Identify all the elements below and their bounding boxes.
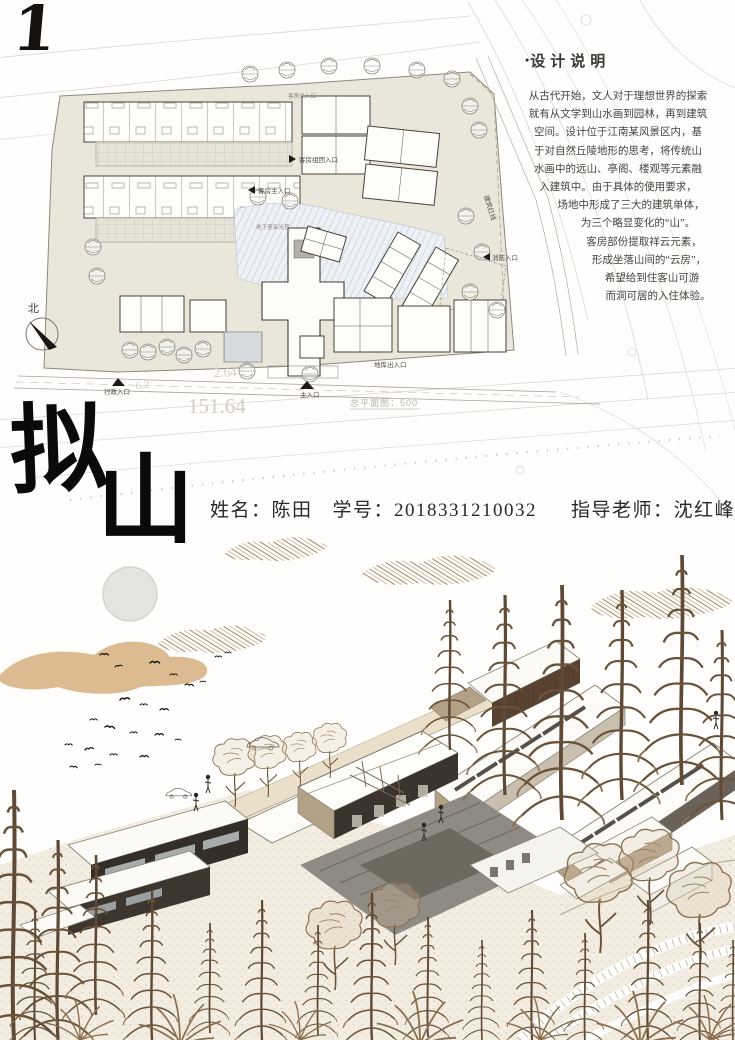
note-line: 于对自然丘陵地形的思考，将传统山 <box>519 143 717 161</box>
north-label: 北 <box>28 302 39 315</box>
design-notes-title-text: 设计说明 <box>530 54 610 70</box>
sheet-number: 1 <box>10 0 60 65</box>
id-label: 学号： <box>333 500 395 521</box>
note-line: 客房部份提取祥云元素， <box>519 234 717 252</box>
dimension-small: 6.2 <box>135 379 150 392</box>
label-admin-entrance: 行政入口 <box>104 387 130 396</box>
note-line: 希望给到住客山可游 <box>519 270 717 288</box>
title-calligraphy-char2: 山 <box>97 452 194 549</box>
note-line: 为三个略显变化的“山”。 <box>519 215 717 233</box>
design-notes-title: •设计说明 <box>525 50 717 71</box>
student-id: 2018331210032 <box>394 500 537 521</box>
advisor-name: 沈红峰 <box>674 500 735 521</box>
advisor-label: 指导老师： <box>571 500 674 521</box>
note-line: 形成坐落山间的“云房”， <box>519 252 717 270</box>
label-guest-cluster-entrance: 客房组团入口 <box>299 155 338 164</box>
presentation-board: 北 客房总入口 客房组团入口 客房主入口 建筑红线 消防入口 地库出入口 地下室… <box>0 0 735 1040</box>
note-line: 水画中的远山、亭阁、楼观等元素融 <box>519 161 717 179</box>
moon <box>103 567 157 621</box>
label-guest-main-entrance: 客房主入口 <box>258 186 291 195</box>
label-basement-skylight: 地下室采光顶 <box>256 223 290 231</box>
scale-note: 总平面图：500 <box>350 397 418 408</box>
student-name: 陈田 <box>272 500 313 521</box>
label-fire-entrance: 消防入口 <box>492 253 518 262</box>
note-line: 就有从文学到山水画到园林，再到建筑 <box>519 106 717 124</box>
note-line: 入建筑中。由于具体的使用要求， <box>519 179 717 197</box>
student-info: 姓名：陈田学号：2018331210032指导老师：沈红峰 <box>210 495 735 522</box>
note-line: 而洞可居的入住体验。 <box>519 288 717 306</box>
label-main-entrance: 主入口 <box>300 390 320 399</box>
design-notes: •设计说明 从古代开始，文人对于理想世界的探索 就有从文学到山水画到园林，再到建… <box>519 50 717 306</box>
name-label: 姓名： <box>210 500 272 521</box>
dimension-frontage: 151.64 <box>188 394 246 418</box>
note-line: 空间。设计位于江南某风景区内，基 <box>519 124 717 142</box>
note-line: 场地中形成了三大的建筑单体， <box>519 197 717 215</box>
dimension-road: 2.64 <box>214 364 238 380</box>
perspective-rendering <box>0 535 735 1040</box>
label-guest-total-entrance: 客房总入口 <box>288 92 316 100</box>
title-calligraphy-char1: 拟 <box>8 399 108 499</box>
bullet-icon: • <box>525 53 529 67</box>
note-line: 从古代开始，文人对于理想世界的探索 <box>519 88 717 106</box>
label-garage-entrance: 地库出入口 <box>374 360 407 369</box>
